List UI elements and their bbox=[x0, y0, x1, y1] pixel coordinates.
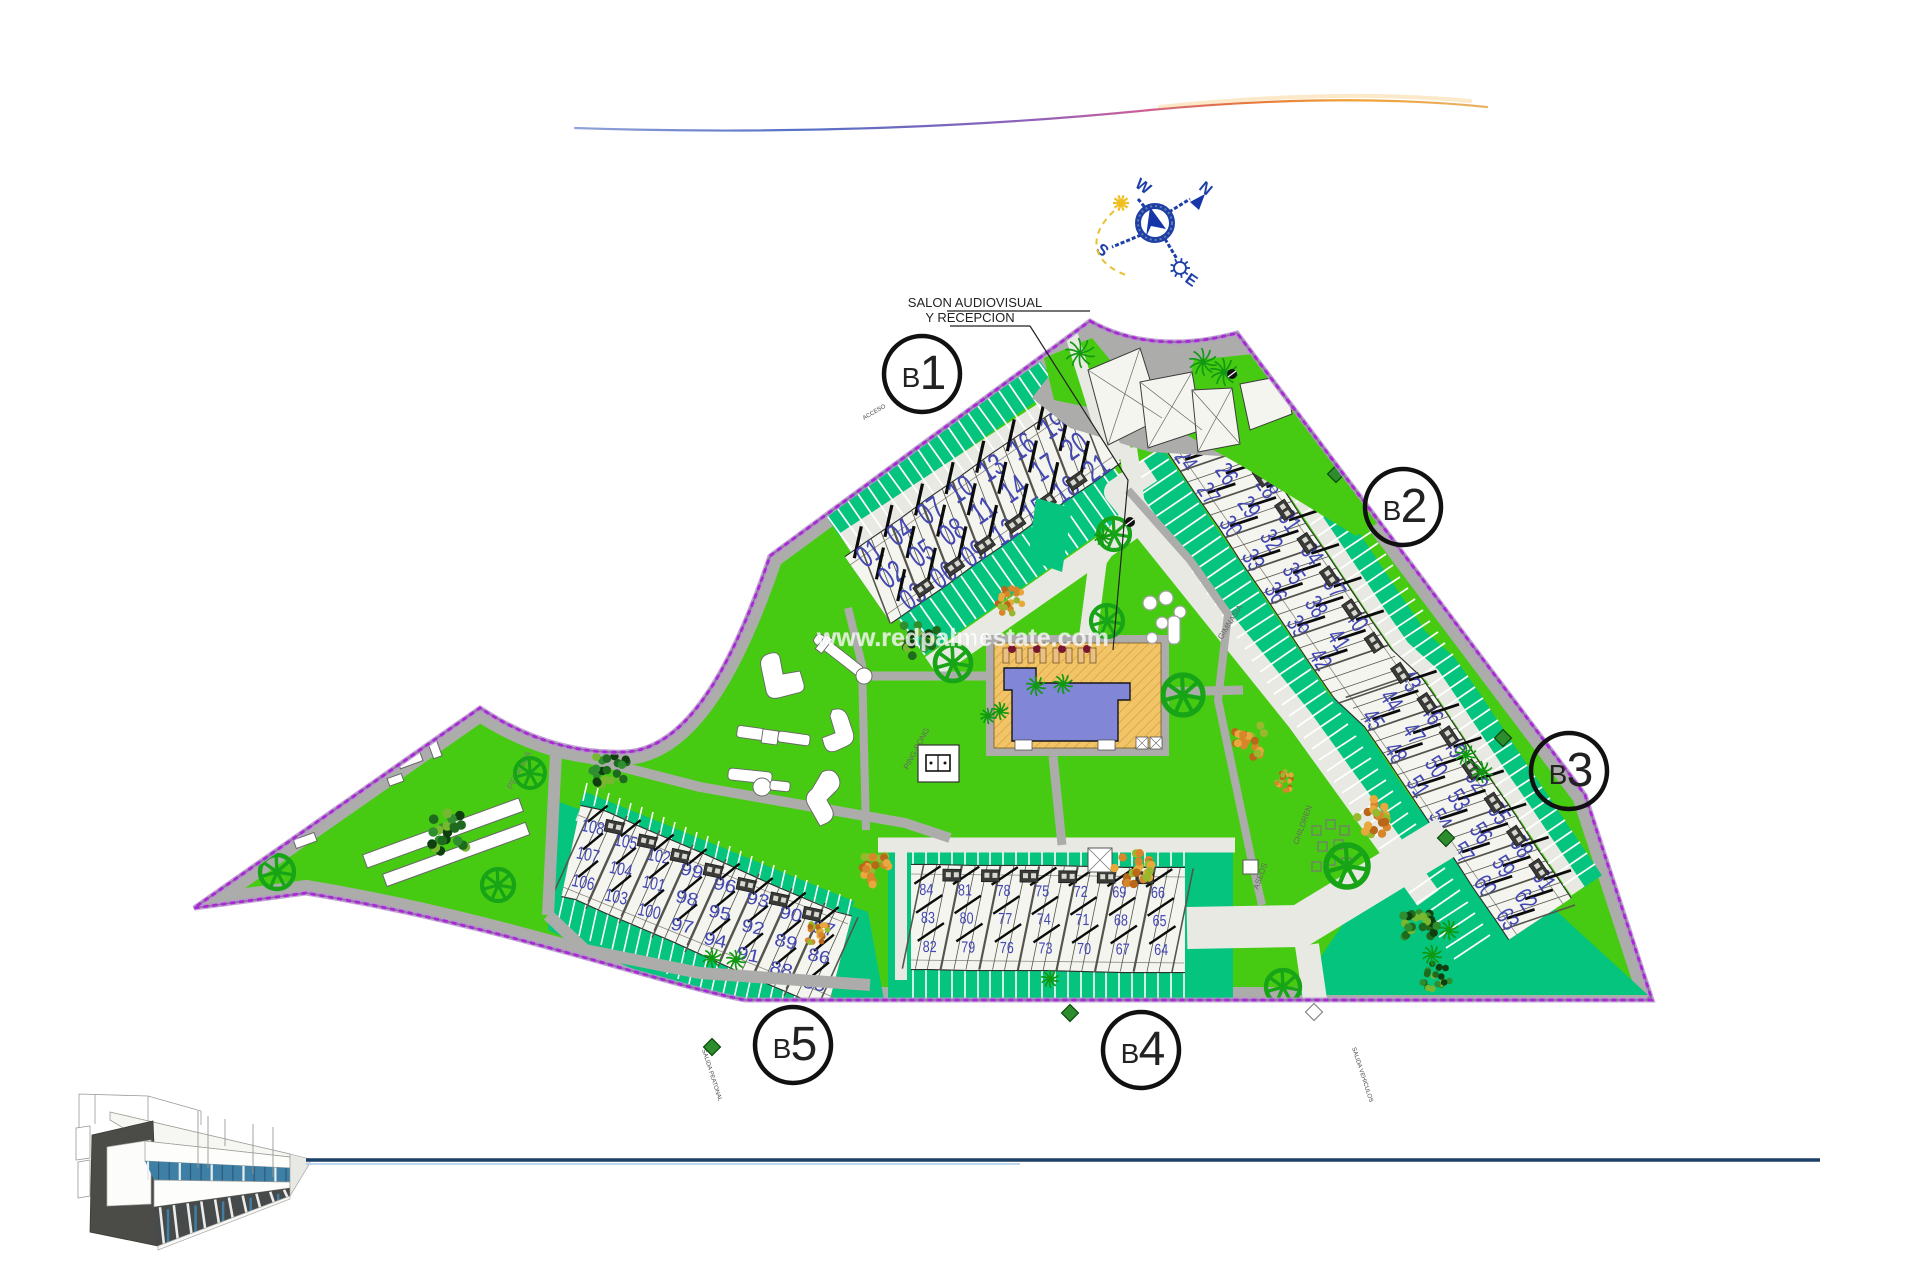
svg-text:70: 70 bbox=[1077, 941, 1091, 958]
svg-text:67: 67 bbox=[1116, 941, 1130, 958]
svg-text:77: 77 bbox=[998, 911, 1012, 928]
svg-text:84: 84 bbox=[919, 882, 933, 899]
svg-text:B: B bbox=[1121, 1038, 1140, 1069]
svg-text:79: 79 bbox=[961, 939, 975, 956]
svg-text:2: 2 bbox=[1401, 480, 1428, 533]
svg-text:65: 65 bbox=[1152, 913, 1166, 930]
svg-text:71: 71 bbox=[1075, 912, 1089, 929]
svg-text:76: 76 bbox=[1000, 940, 1014, 957]
svg-text:B: B bbox=[902, 362, 921, 393]
svg-text:www.redpalmestate.com: www.redpalmestate.com bbox=[816, 624, 1109, 652]
svg-text:81: 81 bbox=[958, 882, 972, 899]
svg-text:78: 78 bbox=[996, 883, 1010, 900]
svg-text:74: 74 bbox=[1037, 911, 1051, 928]
svg-text:B: B bbox=[773, 1033, 792, 1064]
svg-text:69: 69 bbox=[1112, 884, 1126, 901]
svg-text:B: B bbox=[1383, 495, 1402, 526]
svg-text:66: 66 bbox=[1151, 885, 1165, 902]
svg-text:80: 80 bbox=[959, 910, 973, 927]
svg-text:Y RECEPCION: Y RECEPCION bbox=[925, 310, 1014, 325]
svg-text:B: B bbox=[1549, 759, 1568, 790]
svg-text:68: 68 bbox=[1114, 912, 1128, 929]
svg-text:64: 64 bbox=[1154, 942, 1168, 959]
svg-text:4: 4 bbox=[1139, 1023, 1166, 1076]
svg-text:82: 82 bbox=[923, 939, 937, 956]
svg-text:5: 5 bbox=[791, 1018, 818, 1071]
svg-text:83: 83 bbox=[921, 910, 935, 927]
svg-text:75: 75 bbox=[1035, 883, 1049, 900]
svg-text:1: 1 bbox=[920, 347, 947, 400]
svg-text:SALON AUDIOVISUAL: SALON AUDIOVISUAL bbox=[908, 295, 1042, 310]
svg-text:3: 3 bbox=[1567, 744, 1594, 797]
svg-text:72: 72 bbox=[1074, 884, 1088, 901]
svg-text:73: 73 bbox=[1038, 940, 1052, 957]
